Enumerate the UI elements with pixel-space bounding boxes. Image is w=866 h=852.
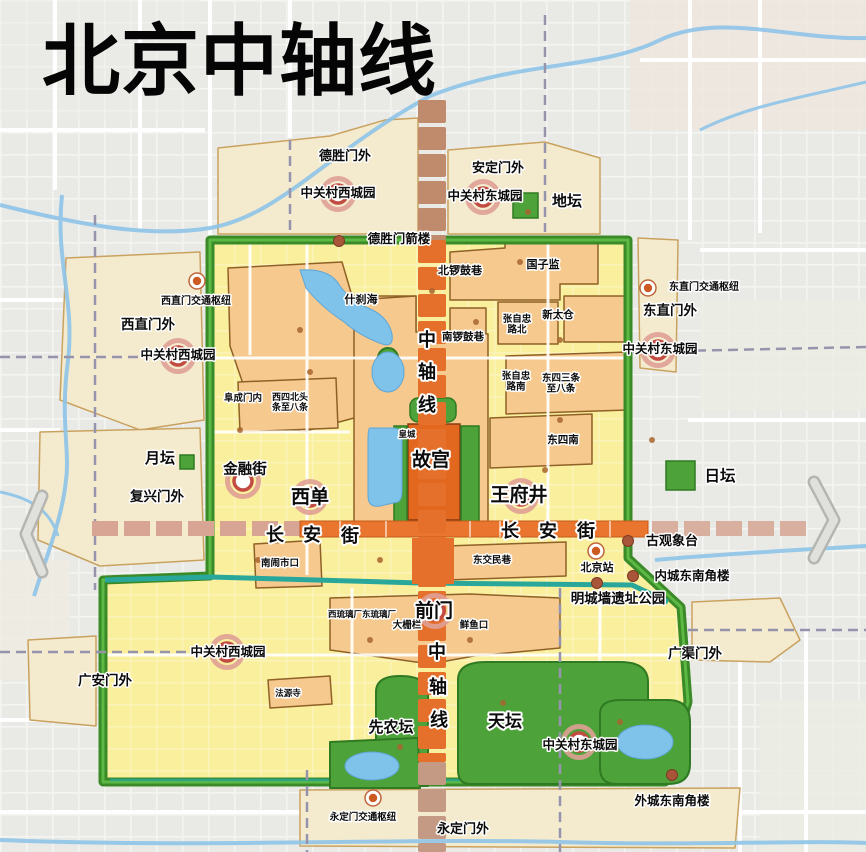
xiannongtan: 先农坛 bbox=[368, 718, 413, 736]
yuetan-park-square bbox=[180, 455, 194, 469]
minor-landmark-dot bbox=[557, 337, 563, 343]
yongdingmenwai: 永定门外 bbox=[436, 821, 489, 837]
central-axis-corridor bbox=[418, 100, 446, 852]
xisibei-1-8: 西四北头条至八条 bbox=[271, 391, 309, 413]
nanluoguxiang: 南锣鼓巷 bbox=[442, 330, 484, 343]
axis-top-3: 线 bbox=[418, 394, 436, 416]
andingmenwai: 安定门外 bbox=[472, 160, 524, 176]
map-title: 北京中轴线 bbox=[42, 22, 437, 104]
changanjie-west-1: 长 bbox=[266, 525, 285, 546]
dashilar: 大栅栏 bbox=[393, 619, 422, 631]
xizhimenwai: 西直门外 bbox=[121, 316, 175, 333]
longtan-lake bbox=[617, 725, 673, 759]
jinrongjie: 金融街 bbox=[222, 460, 267, 478]
guozijian: 国子监 bbox=[527, 257, 560, 271]
liulichang: 西琉璃厂东琉璃厂 bbox=[328, 609, 397, 620]
dongsinan: 东四南 bbox=[547, 433, 579, 446]
minor-landmark-dot bbox=[525, 209, 531, 215]
wangfujing: 王府井 bbox=[490, 483, 547, 506]
axis-bottom-2: 轴 bbox=[429, 676, 447, 698]
huangcheng: 皇城 bbox=[398, 429, 416, 440]
beijingzhan: 北京站 bbox=[581, 560, 614, 574]
minor-landmark-dot bbox=[649, 437, 655, 443]
beijing-central-axis-map: 德胜门外安定门外中关村西城园中关村东城园地坛德胜门箭楼北锣鼓巷国子监西直门交通枢… bbox=[0, 0, 866, 852]
deshengmen-jianlou: 德胜门箭楼 bbox=[368, 231, 431, 246]
tiantan: 天坛 bbox=[488, 712, 522, 732]
zgc-east-park-mid: 中关村东城园 bbox=[622, 341, 697, 356]
fuxingmenwai: 复兴门外 bbox=[129, 488, 184, 505]
yongdingmen-hub: 永定门交通枢纽 bbox=[329, 811, 397, 823]
neicheng-dongnan-jiaolou: 内城东南角楼 bbox=[654, 568, 730, 583]
dongzhimen-hub: 东直门交通枢纽 bbox=[669, 280, 739, 293]
minor-landmark-dot bbox=[473, 319, 479, 325]
changanjie-west-3: 街 bbox=[340, 525, 359, 547]
changanjie-east-3: 街 bbox=[576, 520, 595, 542]
xidan: 西单 bbox=[291, 485, 329, 508]
guangqumenwai: 广渠门外 bbox=[668, 645, 722, 662]
minor-landmark-dot bbox=[517, 259, 523, 265]
minor-landmark-dot bbox=[377, 557, 383, 563]
waicheng-jiaolou-dot bbox=[667, 770, 678, 781]
minor-landmark-dot bbox=[557, 417, 563, 423]
xizhimen-hub: 西直门交通枢纽 bbox=[161, 294, 231, 307]
ditan: 地坛 bbox=[552, 192, 582, 210]
xizhimen-hub-marker bbox=[189, 273, 205, 289]
fayuansi: 法源寺 bbox=[275, 688, 301, 699]
deshengmen-jianlou-dot bbox=[334, 236, 345, 247]
zgc-west-park-top: 中关村西城园 bbox=[300, 185, 375, 200]
dongbianmen-dot bbox=[592, 578, 603, 589]
minor-landmark-dot bbox=[237, 427, 243, 433]
changanjie-east-1: 长 bbox=[501, 521, 520, 542]
ritan-park-square bbox=[666, 461, 695, 490]
changanjie-west-2: 安 bbox=[303, 524, 321, 546]
minor-landmark-dot bbox=[367, 637, 373, 643]
gugong: 故宫 bbox=[412, 448, 450, 471]
minor-landmark-dot bbox=[297, 327, 303, 333]
minor-landmark-dot bbox=[397, 744, 403, 750]
mingchengqiang-park: 明城墙遗址公园 bbox=[571, 590, 666, 607]
zgc-east-park-top: 中关村东城园 bbox=[447, 188, 522, 203]
xianyukou: 鲜鱼口 bbox=[460, 619, 489, 631]
axis-top-2: 轴 bbox=[418, 361, 436, 383]
dongjiaominxiang: 东交民巷 bbox=[473, 554, 512, 566]
yongdingmen-hub-marker bbox=[365, 790, 381, 806]
zhongnanhai-lake bbox=[368, 428, 402, 506]
zgc-west-park-mid: 中关村西城园 bbox=[140, 347, 215, 362]
axis-bottom-3: 线 bbox=[430, 709, 448, 731]
ritan: 日坛 bbox=[704, 467, 736, 485]
tiananmen-square-block bbox=[412, 538, 454, 584]
minor-landmark-dot bbox=[467, 637, 473, 643]
minor-landmark-dot bbox=[617, 719, 623, 725]
guguanxiangtai: 古观象台 bbox=[646, 533, 698, 549]
nannaoshikou: 南闹市口 bbox=[261, 557, 299, 569]
beihai-lake bbox=[372, 352, 404, 392]
minor-landmark-dot bbox=[307, 369, 313, 375]
beijingzhan-marker bbox=[588, 543, 604, 559]
guanganmenwai: 广安门外 bbox=[78, 672, 132, 689]
axis-bottom-1: 中 bbox=[428, 641, 446, 663]
deshengmenwai: 德胜门外 bbox=[319, 148, 371, 164]
shichahai: 什刹海 bbox=[345, 292, 378, 306]
beiluoguxiang: 北锣鼓巷 bbox=[438, 263, 483, 277]
xintaicang: 新太仓 bbox=[542, 308, 574, 321]
minor-landmark-dot bbox=[500, 700, 506, 706]
axis-top-1: 中 bbox=[418, 329, 436, 351]
zgc-west-park-bottom: 中关村西城园 bbox=[190, 644, 265, 659]
fuchengmennei: 阜成门内 bbox=[224, 392, 262, 404]
guguanxiangtai-dot bbox=[623, 536, 634, 547]
dongzhimenwai: 东直门外 bbox=[643, 302, 697, 319]
taoranting-lake bbox=[345, 752, 399, 780]
zgc-east-park-bottom: 中关村东城园 bbox=[542, 737, 617, 752]
map-canvas: 德胜门外安定门外中关村西城园中关村东城园地坛德胜门箭楼北锣鼓巷国子监西直门交通枢… bbox=[0, 0, 866, 852]
qianmen: 前门 bbox=[415, 599, 453, 622]
minor-landmark-dot bbox=[542, 467, 548, 473]
dongzhimen-hub-marker bbox=[640, 280, 656, 296]
yuetan: 月坛 bbox=[144, 449, 175, 467]
changanjie-east-2: 安 bbox=[539, 520, 557, 542]
waicheng-dongnan-jiaolou: 外城东南角楼 bbox=[633, 793, 710, 808]
minor-landmark-dot bbox=[429, 288, 435, 294]
neicheng-jiaolou-dot bbox=[628, 571, 639, 582]
dongsi-3-8: 东四三条至八条 bbox=[542, 372, 581, 394]
